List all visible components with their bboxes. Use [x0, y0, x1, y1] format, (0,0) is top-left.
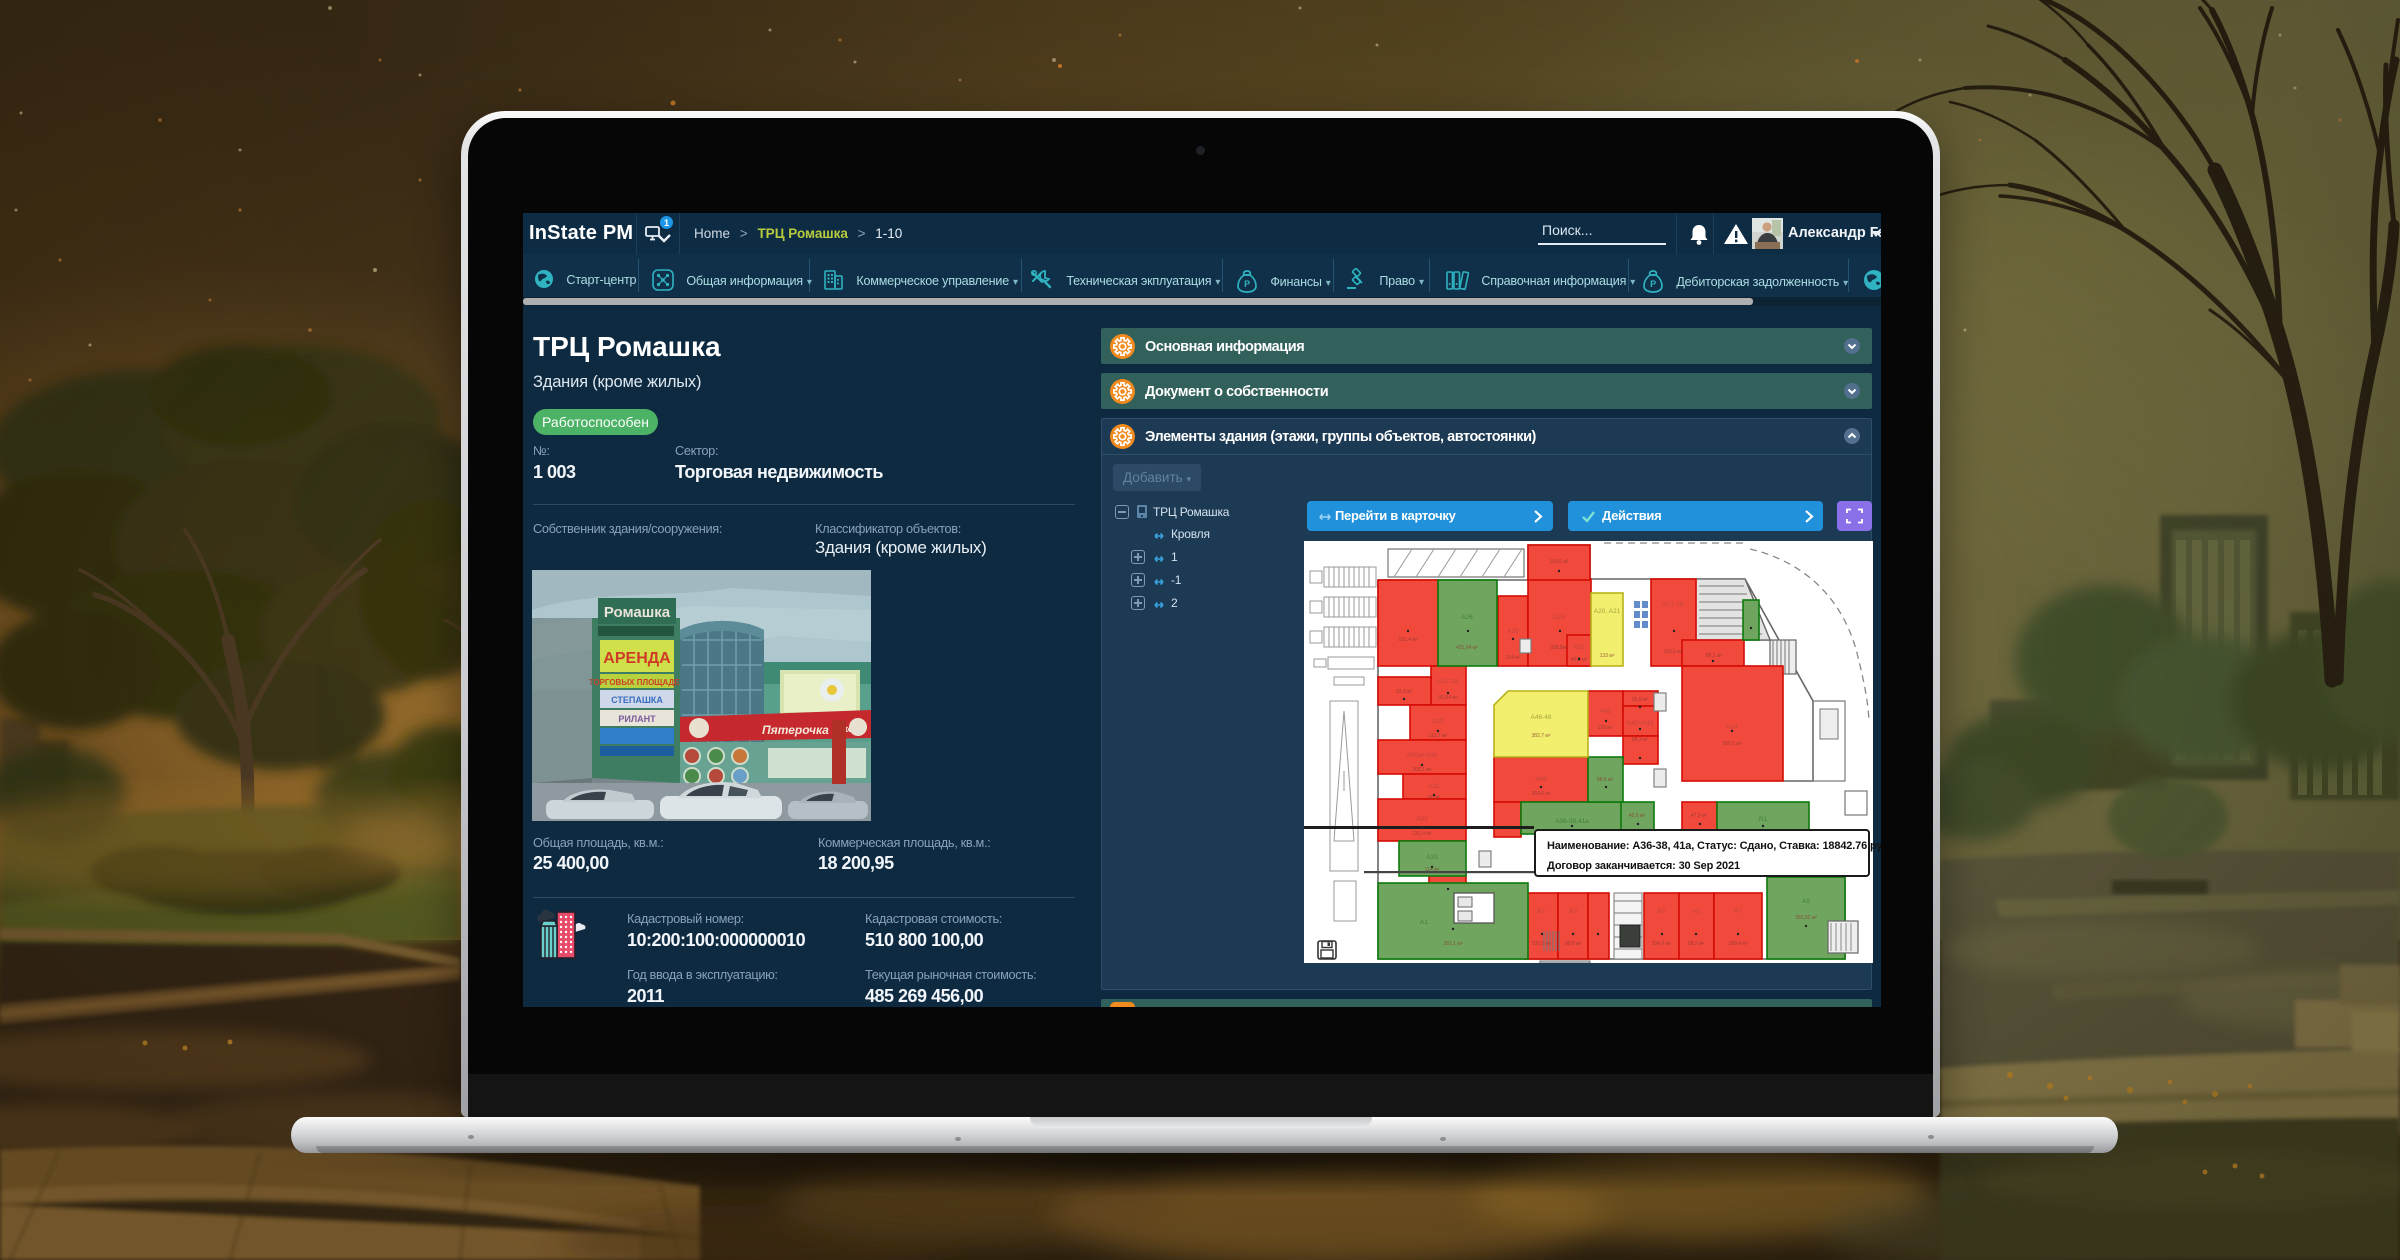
- svg-text:110,6 м²: 110,6 м²: [1550, 559, 1569, 565]
- svg-text:115,1 м²: 115,1 м²: [1664, 649, 1683, 655]
- svg-text:A3: A3: [1569, 908, 1577, 915]
- svg-text:25,9 м²: 25,9 м²: [1632, 697, 1649, 703]
- svg-text:134 м²: 134 м²: [1506, 655, 1521, 661]
- svg-text:A29: A29: [1432, 718, 1444, 725]
- svg-text:R1: R1: [1759, 816, 1768, 823]
- svg-text:A45: A45: [1599, 708, 1611, 715]
- svg-text:1: 1: [664, 218, 670, 229]
- svg-text:A36-38,41а: A36-38,41а: [1555, 818, 1589, 825]
- svg-text:352,92 м²: 352,92 м²: [1795, 915, 1817, 921]
- svg-text:A24: A24: [1553, 614, 1565, 621]
- svg-text:АРЕНДА: АРЕНДА: [603, 650, 671, 667]
- svg-text:A9: A9: [1802, 898, 1810, 905]
- svg-text:560,1 м²: 560,1 м²: [1722, 741, 1741, 747]
- svg-text:42,6 м²: 42,6 м²: [1629, 813, 1646, 819]
- svg-text:P: P: [1650, 279, 1656, 289]
- svg-text:168,4 м²: 168,4 м²: [1728, 941, 1747, 947]
- svg-text:A46-48: A46-48: [1531, 714, 1552, 721]
- svg-text:262,1 м²: 262,1 м²: [1443, 941, 1462, 947]
- svg-text:431,64 м²: 431,64 м²: [1456, 645, 1478, 651]
- svg-text:104,9 м²: 104,9 м²: [1651, 941, 1670, 947]
- svg-text:47,9 м²: 47,9 м²: [1691, 813, 1708, 819]
- svg-text:98,6 м²: 98,6 м²: [1597, 777, 1614, 783]
- svg-text:231,4 м²: 231,4 м²: [1412, 831, 1431, 837]
- svg-text:93,84 м²: 93,84 м²: [1438, 695, 1457, 701]
- svg-text:86,1 м²: 86,1 м²: [1706, 653, 1723, 659]
- svg-text:A33: A33: [1426, 854, 1438, 861]
- svg-text:Пятерочка: Пятерочка: [762, 723, 829, 737]
- svg-text:93,3 м²: 93,3 м²: [1396, 689, 1413, 695]
- svg-text:A1: A1: [1420, 919, 1428, 926]
- svg-text:161,4 м²: 161,4 м²: [1398, 637, 1417, 643]
- svg-text:382,7 м²: 382,7 м²: [1531, 733, 1550, 739]
- svg-text:A5: A5: [1657, 908, 1665, 915]
- svg-text:A6: A6: [1692, 908, 1700, 915]
- svg-text:A17-19: A17-19: [1663, 601, 1684, 608]
- svg-text:A7: A7: [1734, 908, 1742, 915]
- svg-text:РИЛАНТ: РИЛАНТ: [618, 714, 656, 724]
- svg-text:A23: A23: [1573, 644, 1585, 651]
- svg-text:98,8 м²: 98,8 м²: [1565, 941, 1582, 947]
- svg-text:ТОРГОВЫХ ПЛОЩАДЕЙ: ТОРГОВЫХ ПЛОЩАДЕЙ: [589, 678, 686, 687]
- svg-text:100,0 м²: 100,0 м²: [1531, 941, 1550, 947]
- svg-text:264,6 м²: 264,6 м²: [1531, 791, 1550, 797]
- svg-text:328,8м²: 328,8м²: [1550, 645, 1568, 651]
- svg-text:133 м²: 133 м²: [1600, 653, 1615, 659]
- svg-text:A31: A31: [1428, 783, 1440, 790]
- svg-text:Ромашка: Ромашка: [604, 604, 671, 621]
- svg-text:A32: A32: [1416, 816, 1428, 823]
- svg-text:A25: A25: [1507, 628, 1519, 635]
- svg-text:A2: A2: [1537, 908, 1545, 915]
- svg-text:A26: A26: [1461, 614, 1473, 621]
- svg-text:P: P: [1244, 279, 1250, 289]
- svg-text:111,7 м²: 111,7 м²: [1429, 733, 1448, 739]
- svg-text:СТЕПАШКА: СТЕПАШКА: [611, 695, 663, 705]
- svg-text:98,3 м²: 98,3 м²: [1632, 737, 1649, 743]
- svg-text:A30а+А30: A30а+А30: [1407, 752, 1438, 759]
- svg-text:A27-28: A27-28: [1438, 678, 1459, 685]
- svg-text:A42+А43: A42+А43: [1627, 720, 1654, 727]
- svg-text:99,2 м²: 99,2 м²: [1688, 941, 1705, 947]
- svg-text:A20, A21: A20, A21: [1594, 608, 1621, 615]
- svg-text:A49: A49: [1535, 776, 1547, 783]
- svg-text:129 м²: 129 м²: [1598, 725, 1613, 731]
- svg-text:266,1 м²: 266,1 м²: [1412, 767, 1431, 773]
